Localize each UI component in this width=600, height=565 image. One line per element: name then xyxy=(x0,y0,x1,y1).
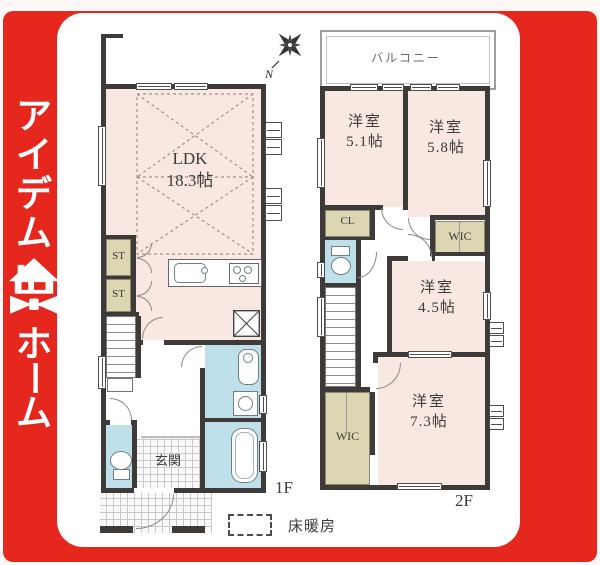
wall xyxy=(106,235,134,239)
wall xyxy=(106,276,131,279)
stairs-2f xyxy=(325,287,356,387)
window xyxy=(98,126,106,186)
porch-sill xyxy=(172,526,205,533)
wall xyxy=(452,352,485,357)
toilet-tank-icon xyxy=(331,246,350,256)
window xyxy=(408,351,452,358)
room-size: 7.3帖 xyxy=(384,412,474,432)
room-size: 5.1帖 xyxy=(329,132,401,152)
washbasin-bowl-icon xyxy=(243,353,253,363)
logo-char: デ xyxy=(16,174,52,213)
wall xyxy=(101,420,110,425)
room-label-7-3: 洋室 7.3帖 xyxy=(384,392,474,432)
toilet-tank-icon xyxy=(113,469,130,480)
wic-label: WIC xyxy=(325,429,370,444)
window xyxy=(350,84,378,91)
wall xyxy=(200,368,205,488)
wall xyxy=(164,340,261,345)
window xyxy=(410,84,432,91)
logo-char: ム xyxy=(16,393,52,432)
wall xyxy=(101,488,134,493)
entrance-label: 玄関 xyxy=(143,450,193,469)
wall xyxy=(136,316,141,378)
wic-divider-line xyxy=(346,393,347,433)
wall xyxy=(205,418,261,422)
logo-char: ア xyxy=(16,96,52,135)
duct-box xyxy=(233,310,260,337)
window xyxy=(317,262,325,278)
balcony-label: バルコニー xyxy=(350,49,462,66)
casement-window xyxy=(489,335,504,347)
storage-label: ST xyxy=(106,288,131,300)
wall xyxy=(132,425,137,488)
wall xyxy=(325,237,375,240)
window xyxy=(317,297,325,337)
stairs-1f xyxy=(106,316,136,378)
burner-icon xyxy=(239,275,246,282)
room-label-4-5: 洋室 4.5帖 xyxy=(394,278,480,318)
wall xyxy=(325,387,370,392)
wall xyxy=(432,256,435,261)
wall xyxy=(387,256,392,352)
storage-label: ST xyxy=(106,250,131,262)
washing-machine-icon xyxy=(238,396,253,411)
legend-label: 床暖房 xyxy=(280,515,344,536)
casement-window xyxy=(265,139,282,155)
wall xyxy=(131,235,136,316)
floor2-label: 2F xyxy=(448,491,480,511)
logo-char: ム xyxy=(16,213,52,252)
room-label-5-1: 洋室 5.1帖 xyxy=(329,112,401,152)
house-bowtie-icon xyxy=(9,258,59,320)
room-name: LDK xyxy=(150,148,230,170)
wall xyxy=(373,352,378,363)
window xyxy=(397,483,442,490)
toilet-bowl-icon xyxy=(110,451,132,470)
room-name: 洋室 xyxy=(394,278,480,298)
casement-window xyxy=(489,418,504,430)
window xyxy=(436,84,460,91)
ldk-label: LDK 18.3帖 xyxy=(150,148,230,192)
faucet-icon xyxy=(201,267,208,274)
room-label-5-8: 洋室 5.8帖 xyxy=(410,118,482,158)
window xyxy=(174,83,208,90)
room-size: 4.5帖 xyxy=(394,298,480,318)
shoe-cabinet xyxy=(107,378,133,392)
bathtub-inner xyxy=(235,432,254,479)
casement-window xyxy=(265,205,282,221)
compass-north-label: N xyxy=(264,67,274,80)
burner-icon xyxy=(233,266,241,274)
window xyxy=(483,292,491,320)
window xyxy=(259,441,267,472)
floor1-label: 1F xyxy=(268,478,300,498)
brand-logo: ア イ デ ム ホ ー ム xyxy=(10,96,58,432)
burner-icon xyxy=(244,266,252,274)
wall xyxy=(370,392,375,455)
floor-heating-swatch xyxy=(228,514,272,536)
window xyxy=(98,356,106,389)
casement-window xyxy=(489,405,504,417)
logo-char: ホ xyxy=(16,324,52,363)
room-size: 5.8帖 xyxy=(410,138,482,158)
logo-char: ー xyxy=(19,360,49,396)
wall xyxy=(370,210,375,238)
window xyxy=(382,84,404,91)
wall xyxy=(430,252,485,256)
room-size: 18.3帖 xyxy=(150,170,230,192)
wic-label: WIC xyxy=(435,229,485,244)
compass-rose-icon: N xyxy=(264,24,314,80)
window xyxy=(317,138,325,188)
closet-label: CL xyxy=(325,215,370,227)
room-name: 洋室 xyxy=(329,112,401,132)
toilet-bowl-icon xyxy=(331,257,351,275)
porch-sill xyxy=(100,526,133,533)
wall xyxy=(174,488,266,493)
window xyxy=(483,160,491,207)
logo-char: イ xyxy=(16,135,52,174)
window xyxy=(259,395,267,414)
room-name: 洋室 xyxy=(384,392,474,412)
casement-window xyxy=(489,322,504,334)
casement-window xyxy=(265,188,282,204)
wall xyxy=(356,287,361,390)
entrance-step-line xyxy=(141,436,200,438)
window xyxy=(136,83,172,90)
floor-plan-flyer: ア イ デ ム ホ ー ム N xyxy=(0,0,600,565)
casement-window xyxy=(265,122,282,138)
wall xyxy=(373,352,408,357)
room-name: 洋室 xyxy=(410,118,482,138)
wall xyxy=(403,91,408,210)
wall xyxy=(430,215,485,220)
